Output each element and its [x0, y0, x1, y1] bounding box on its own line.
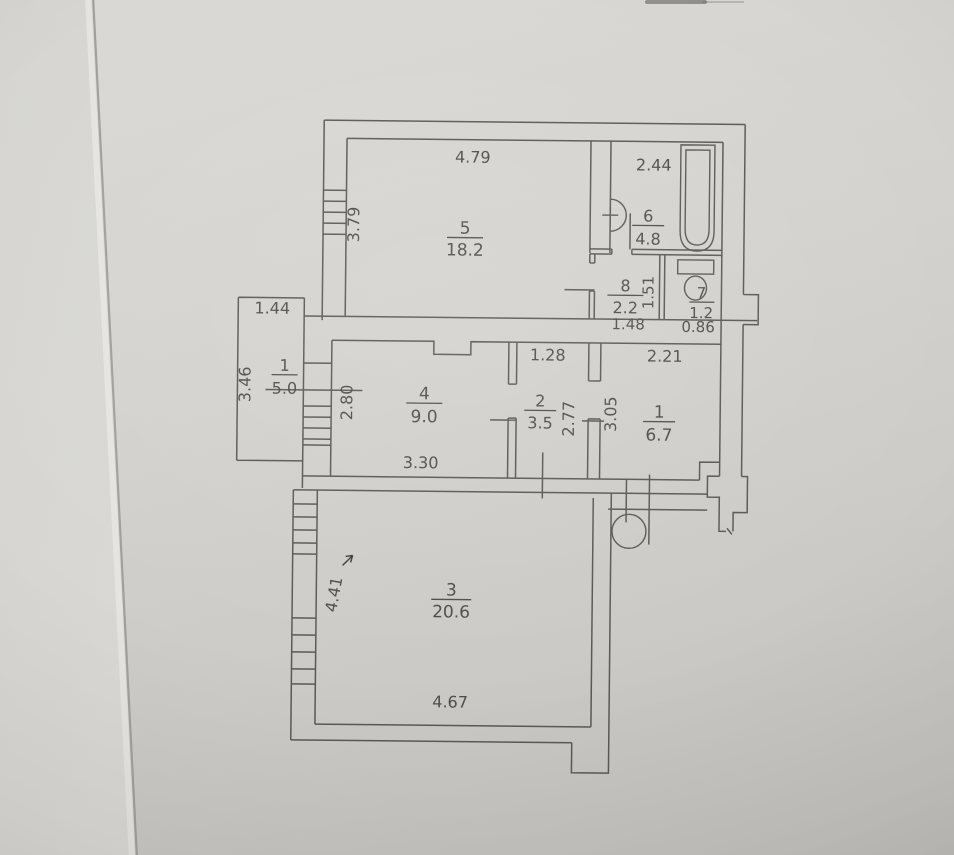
- round-stove-icon: [612, 514, 646, 548]
- dim-room3-height-pen: 4.41: [321, 575, 346, 614]
- dim-room2-height: 2.77: [559, 401, 578, 437]
- walls: [233, 119, 760, 774]
- dim-room8-width: 1.48: [611, 315, 645, 333]
- wall-band-lower: [302, 458, 719, 494]
- porch-edge: [608, 509, 707, 510]
- wall-room4-room2: [507, 342, 516, 478]
- window-hatch-icon-room3-b: [291, 618, 316, 684]
- room-number: 4: [419, 384, 430, 404]
- wall-room2-room1: [587, 343, 600, 479]
- dim-room7-width: 0.86: [681, 318, 715, 336]
- dim-room5-height: 3.79: [344, 207, 363, 243]
- room-area: 3.5: [527, 413, 553, 432]
- room-4-label: 4 9.0: [406, 384, 442, 427]
- wall-room8-left: [589, 254, 595, 319]
- room-number: 7: [697, 284, 707, 302]
- labels: 5 18.2 4.79 3.79 6 4.8 2.44 8 2.2 1.48 1…: [232, 145, 717, 714]
- pen-arrow-mark: [343, 555, 353, 565]
- window-hatch-icon-balcony: [303, 406, 331, 439]
- window-hatch-icon-room5: [323, 190, 346, 234]
- dim-room4-width: 3.30: [403, 453, 439, 472]
- room-area: 5.0: [272, 379, 298, 398]
- inner-wall-top: [347, 138, 723, 142]
- outer-wall-right: [742, 125, 761, 477]
- room-3-label: 3 20.6: [431, 580, 471, 622]
- room-7-label: 7 1.2: [689, 284, 714, 322]
- room-area: 20.6: [432, 602, 470, 622]
- toilet-icon: [677, 260, 713, 300]
- room-number: 6: [643, 206, 653, 225]
- room-area: 9.0: [411, 407, 438, 427]
- room-number: 5: [460, 219, 471, 239]
- outer-wall-top: [324, 120, 745, 124]
- dim-room1-height: 3.05: [601, 396, 620, 432]
- room-8-label: 8 2.2: [607, 276, 643, 317]
- inner-wall-right: [720, 142, 723, 476]
- outer-wall-left-lower: [291, 490, 303, 740]
- floor-plan: 5 18.2 4.79 3.79 6 4.8 2.44 8 2.2 1.48 1…: [0, 0, 954, 855]
- room-number: 1: [654, 403, 665, 423]
- inner-wall-left-middle: [331, 340, 332, 476]
- room-area: 4.8: [635, 229, 661, 248]
- room-5-label: 5 18.2: [446, 218, 484, 260]
- loggia-label: 1 5.0: [271, 356, 297, 398]
- entrance-wall-end: [707, 476, 748, 531]
- room-6-label: 6 4.8: [632, 206, 664, 248]
- room-number: 2: [535, 391, 545, 410]
- washbasin-icon: [602, 199, 626, 231]
- window-hatch-icon-room3-a: [293, 504, 318, 554]
- dim-room3-width: 4.67: [432, 692, 468, 711]
- room-area: 6.7: [645, 426, 672, 446]
- room-2-label: 2 3.5: [524, 391, 556, 432]
- outer-wall-left-middle: [302, 298, 304, 488]
- room-number: 1: [279, 356, 289, 375]
- photo-of-floor-plan: { "document": { "type": "floor-plan-phot…: [0, 0, 954, 855]
- wall-room8-room7: [659, 255, 665, 320]
- wall-room5-room6: [590, 141, 611, 253]
- bathtub-inner-line: [685, 150, 710, 245]
- dim-loggia-width: 1.44: [254, 298, 290, 317]
- dim-room8-height: 1.51: [639, 276, 657, 310]
- room-area: 18.2: [446, 240, 484, 260]
- dim-room1-width: 2.21: [647, 347, 683, 366]
- room-1-label: 1 6.7: [643, 402, 675, 445]
- dim-room2-width: 1.28: [530, 345, 566, 364]
- entrance-door-tick: [727, 528, 732, 534]
- dim-room5-width: 4.79: [455, 148, 491, 167]
- dim-loggia-height: 3.46: [235, 366, 254, 402]
- room-number: 3: [446, 580, 457, 600]
- outer-wall-bottom: [290, 490, 611, 773]
- dim-room6-width: 2.44: [636, 155, 672, 174]
- outer-wall-left-upper: [322, 120, 324, 320]
- dim-room4-height: 2.80: [337, 384, 356, 420]
- photo-edge-smudge: [645, 0, 707, 4]
- room-number: 8: [620, 276, 630, 295]
- inner-wall-left-lower: [315, 490, 317, 724]
